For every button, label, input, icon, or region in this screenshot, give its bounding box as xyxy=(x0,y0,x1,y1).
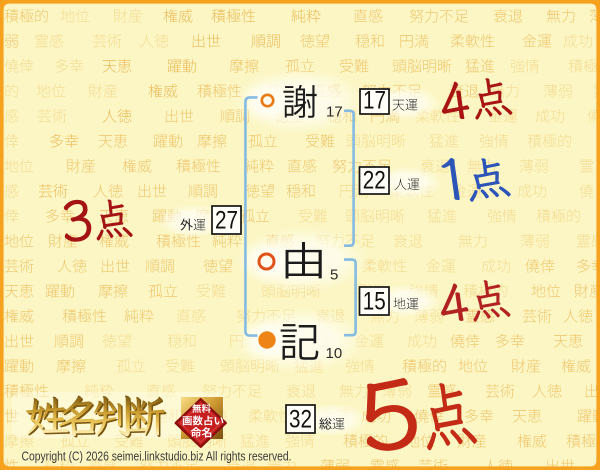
svg-text:15: 15 xyxy=(363,288,386,316)
svg-text:10: 10 xyxy=(326,345,343,362)
svg-text:32: 32 xyxy=(289,406,312,434)
svg-text:22: 22 xyxy=(363,167,386,195)
svg-text:27: 27 xyxy=(215,207,238,235)
svg-text:Copyright (C) 2026 seimei.link: Copyright (C) 2026 seimei.linkstudio.biz… xyxy=(22,448,292,463)
svg-text:17: 17 xyxy=(363,87,386,115)
svg-text:5: 5 xyxy=(330,267,338,284)
svg-text:17: 17 xyxy=(326,104,343,121)
